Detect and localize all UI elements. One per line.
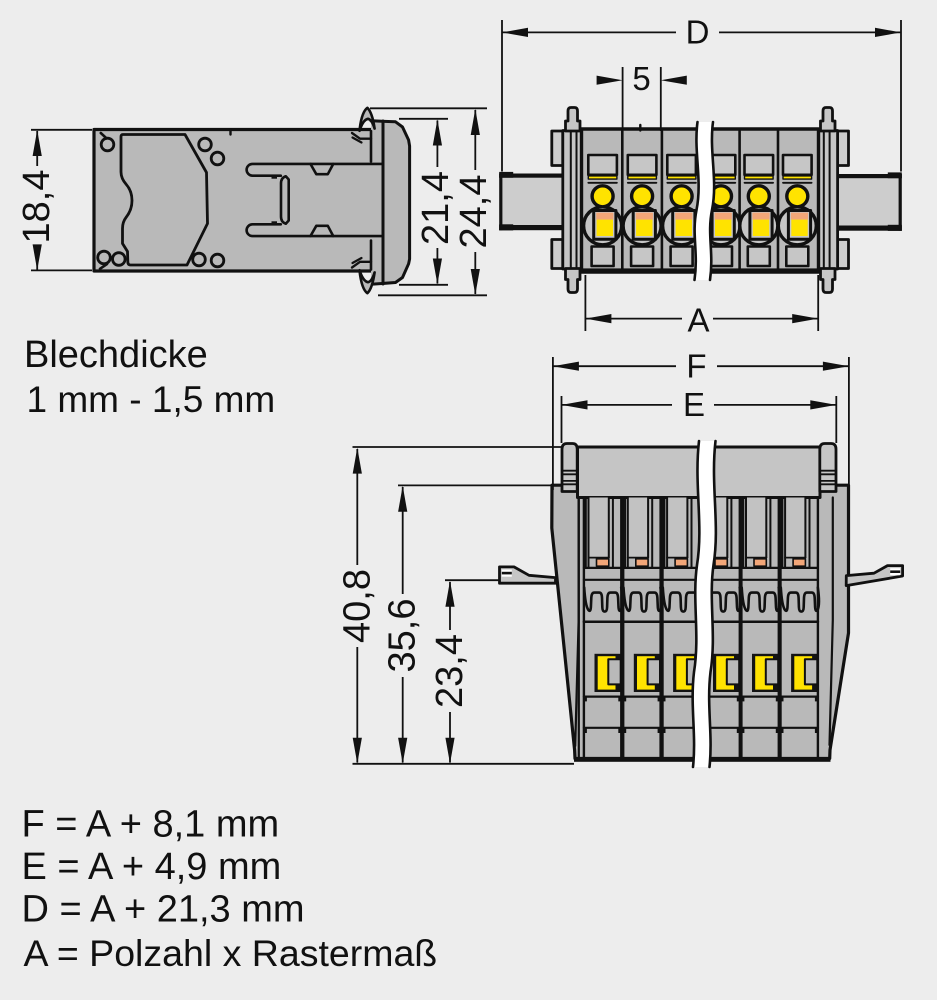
svg-text:24,4: 24,4 xyxy=(453,175,495,249)
svg-text:A: A xyxy=(687,302,709,339)
svg-text:Blechdicke: Blechdicke xyxy=(24,334,208,376)
svg-text:E = A + 4,9 mm: E = A + 4,9 mm xyxy=(22,846,282,888)
svg-text:35,6: 35,6 xyxy=(382,599,424,673)
svg-text:40,8: 40,8 xyxy=(336,569,378,643)
svg-text:1 mm - 1,5 mm: 1 mm - 1,5 mm xyxy=(27,379,276,420)
svg-text:D: D xyxy=(686,13,710,50)
svg-text:F = A + 8,1 mm: F = A + 8,1 mm xyxy=(22,804,280,846)
svg-text:23,4: 23,4 xyxy=(429,634,471,708)
svg-text:18,4: 18,4 xyxy=(16,170,58,244)
svg-text:F: F xyxy=(686,348,706,385)
svg-text:5: 5 xyxy=(632,60,650,97)
svg-text:A = Polzahl x Rastermaß: A = Polzahl x Rastermaß xyxy=(24,932,438,974)
svg-text:E: E xyxy=(683,386,705,423)
svg-text:D = A + 21,3 mm: D = A + 21,3 mm xyxy=(22,889,305,931)
svg-text:21,4: 21,4 xyxy=(415,171,457,245)
